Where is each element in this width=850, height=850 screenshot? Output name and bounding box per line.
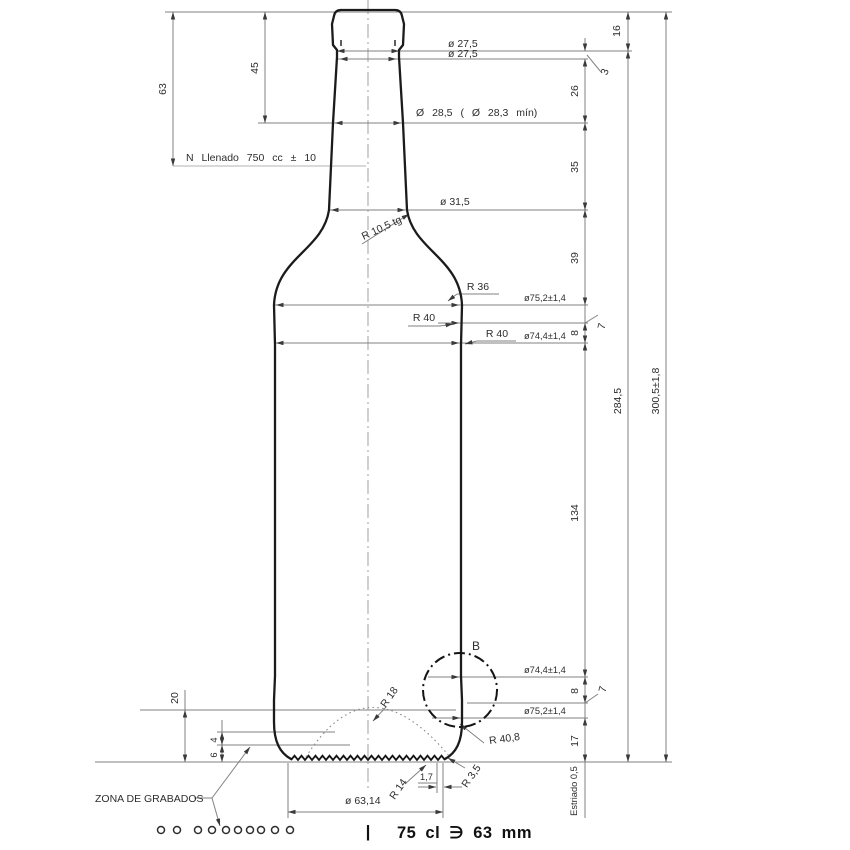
label-r18: R 18: [378, 685, 401, 710]
leader-r36: [448, 294, 457, 301]
label-dia-31-5: ø 31,5: [440, 196, 470, 208]
label-dim-39: 39: [569, 252, 581, 264]
label-dim-8-bottom: 8: [569, 688, 581, 694]
label-dim-7-bottom: 7: [597, 685, 610, 694]
engraving-dots: [158, 827, 294, 834]
label-dim-26: 26: [569, 85, 581, 97]
label-engraving-zone: ZONA DE GRABADOS: [95, 793, 204, 805]
label-dia-63-14: ø 63,14: [345, 795, 381, 807]
engraving-dot: [158, 827, 165, 834]
technical-drawing-page: ø 27,5 ø 27,5 Ø 28,5 ( Ø 28,3 mín) N Lle…: [0, 0, 850, 850]
bottle-drawing-canvas: ø 27,5 ø 27,5 Ø 28,5 ( Ø 28,3 mín) N Lle…: [0, 0, 850, 850]
label-r14: R 14: [387, 777, 410, 802]
leader-r40-a: [440, 324, 453, 326]
label-dim-1-7: 1,7: [420, 772, 433, 782]
label-dim-284-5: 284,5: [612, 388, 624, 414]
label-dim-134: 134: [569, 504, 581, 522]
leader-r18: [373, 707, 386, 721]
label-r40-a: R 40: [413, 312, 435, 324]
label-knurl-note: Estriado 0,5: [569, 766, 579, 816]
leader-7-bottom: [585, 694, 598, 703]
footer-divider-mark: |: [366, 822, 371, 841]
label-dim-20: 20: [169, 692, 181, 704]
label-dia-74-4-bottom: ø74,4±1,4: [524, 665, 566, 675]
label-fill-level: N Llenado 750 cc ± 10: [186, 152, 316, 164]
label-dim-8-top: 8: [569, 330, 581, 336]
label-r40-8: R 40,8: [488, 731, 520, 747]
label-r40-b: R 40: [486, 328, 508, 340]
leader-lines: [194, 214, 598, 826]
label-dim-3: 3: [599, 67, 612, 77]
label-dim-4: 4: [209, 737, 219, 742]
engraving-dot: [247, 827, 254, 834]
label-dim-45: 45: [249, 62, 261, 74]
label-dia-75-2-top: ø75,2±1,4: [524, 293, 566, 303]
label-detail-b: B: [472, 639, 480, 653]
label-dia-75-2-bottom: ø75,2±1,4: [524, 706, 566, 716]
leader-r40-8: [460, 724, 484, 743]
engraving-dot: [287, 827, 294, 834]
engraving-dot: [223, 827, 230, 834]
footer-capacity-spec: 75 cl ∋ 63 mm: [397, 824, 532, 842]
label-dim-16: 16: [611, 25, 623, 37]
dimension-lines: [173, 12, 666, 812]
label-r36: R 36: [467, 281, 489, 293]
label-dia-28-5: Ø 28,5 ( Ø 28,3 mín): [416, 107, 537, 119]
leader-r3-5: [448, 758, 465, 768]
label-dim-7-top: 7: [596, 322, 609, 331]
engraving-dot: [235, 827, 242, 834]
engraving-dot: [258, 827, 265, 834]
label-dim-300-5: 300,5±1,8: [650, 368, 662, 415]
label-dim-35: 35: [569, 161, 581, 173]
label-dim-6: 6: [209, 752, 219, 757]
label-dia-27-5-b: ø 27,5: [448, 48, 478, 60]
bottle-right-profile: [341, 10, 462, 759]
engraving-dot: [195, 827, 202, 834]
leader-engraving-dots: [212, 798, 220, 826]
engraving-dot: [209, 827, 216, 834]
label-r10-5: R 10,5 tg: [360, 214, 404, 243]
label-dim-17: 17: [569, 735, 581, 747]
label-dim-63: 63: [157, 83, 169, 95]
engraving-dot: [272, 827, 279, 834]
leader-7-top: [585, 315, 598, 323]
engraving-dot: [174, 827, 181, 834]
bottle-left-profile: [274, 10, 341, 759]
labels: ø 27,5 ø 27,5 Ø 28,5 ( Ø 28,3 mín) N Lle…: [95, 25, 662, 842]
label-dia-74-4-top: ø74,4±1,4: [524, 331, 566, 341]
